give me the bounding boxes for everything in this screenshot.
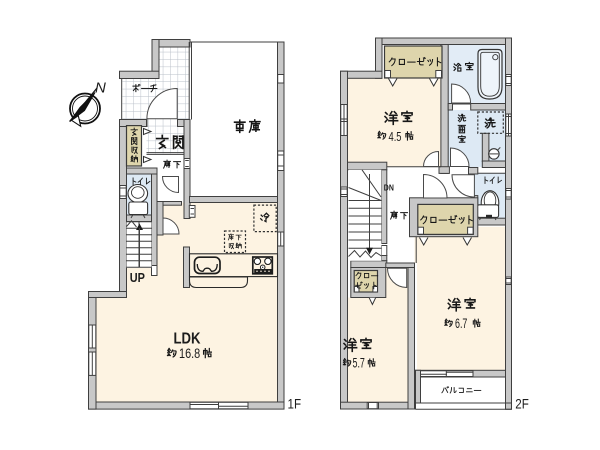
svg-text:5.7: 5.7 [353,357,365,371]
svg-text:16.8: 16.8 [179,346,200,362]
svg-text:2F: 2F [515,397,529,412]
svg-text:N: N [95,80,106,97]
svg-text:1F: 1F [288,397,302,412]
svg-text:UP: UP [130,270,145,285]
svg-text:DN: DN [384,183,394,193]
svg-text:4.5: 4.5 [389,131,402,145]
svg-text:6.7: 6.7 [455,317,467,331]
